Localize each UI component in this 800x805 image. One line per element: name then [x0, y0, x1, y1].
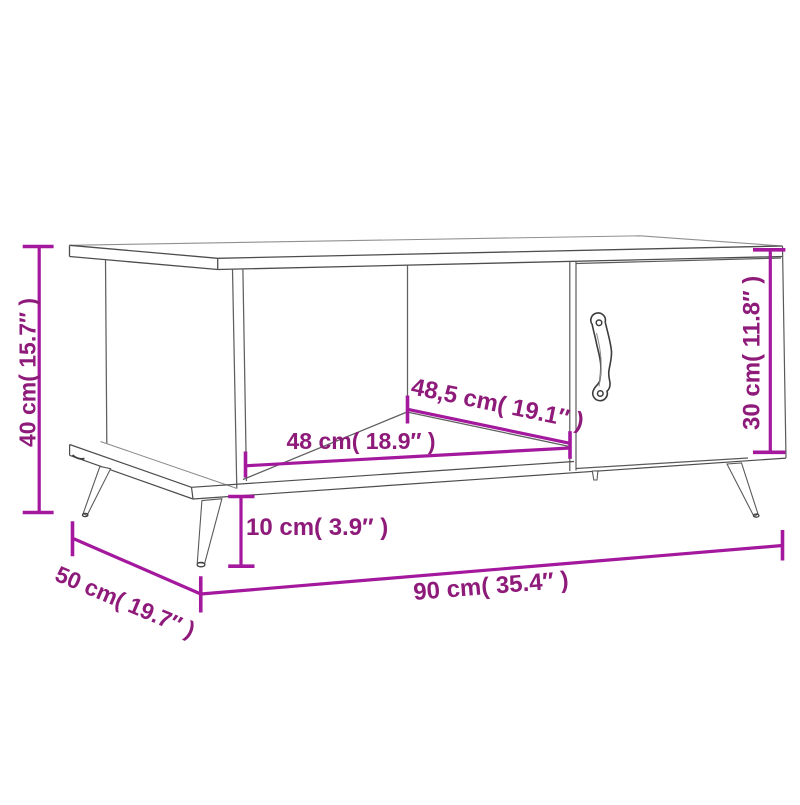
svg-text:48 cm( 18.9″ ): 48 cm( 18.9″ ): [287, 428, 436, 454]
svg-text:40 cm( 15.7″ ): 40 cm( 15.7″ ): [15, 298, 41, 447]
svg-text:30 cm( 11.8″ ): 30 cm( 11.8″ ): [739, 276, 766, 430]
svg-text:10 cm( 3.9″ ): 10 cm( 3.9″ ): [246, 514, 388, 541]
